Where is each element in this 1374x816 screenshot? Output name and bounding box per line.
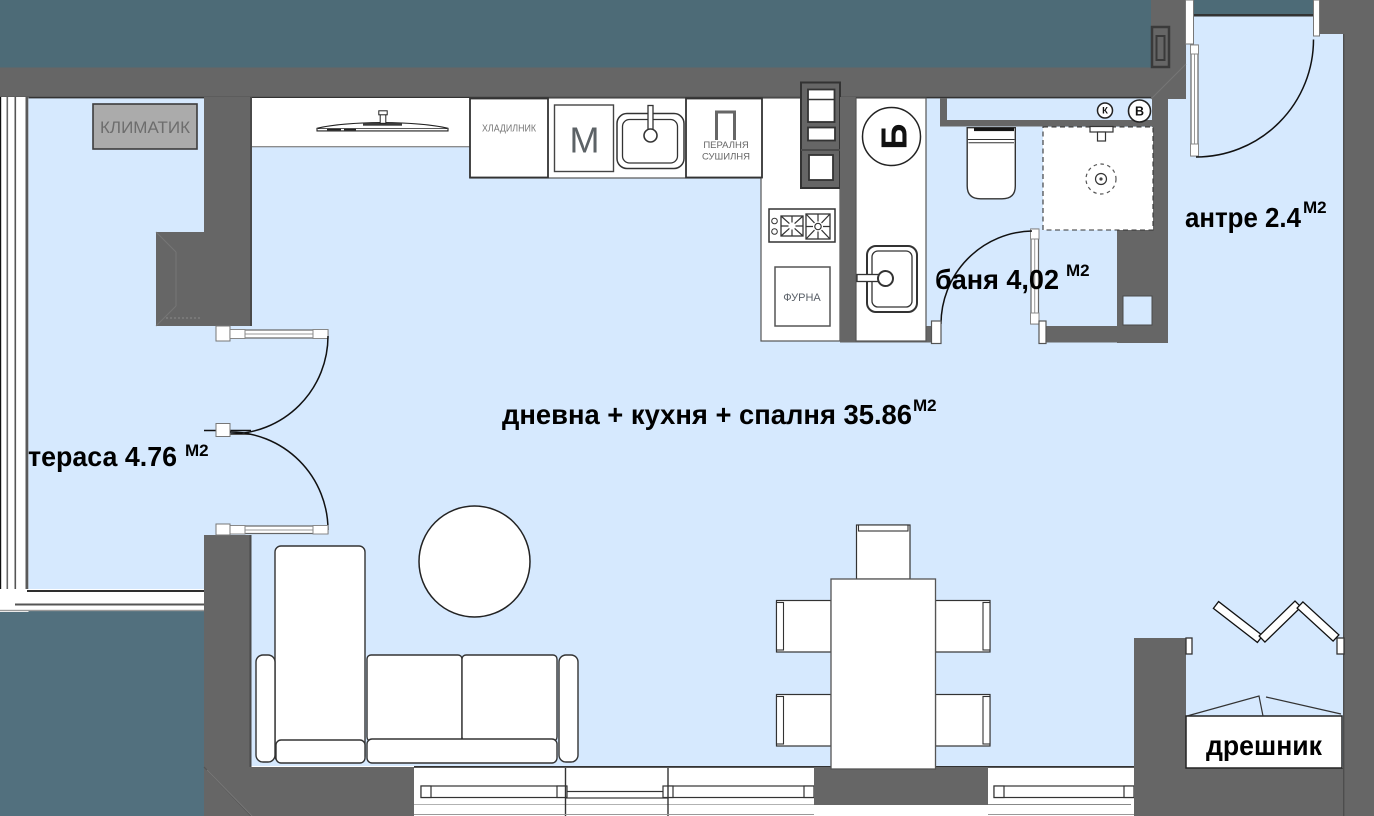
svg-text:Б: Б	[874, 124, 915, 150]
svg-text:М2: М2	[913, 396, 937, 415]
svg-text:М2: М2	[1303, 198, 1327, 217]
svg-text:баня 4,02: баня 4,02	[935, 264, 1059, 295]
svg-text:ПЕРАЛНЯ: ПЕРАЛНЯ	[703, 140, 749, 151]
svg-text:дневна + кухня + спалня 35.86: дневна + кухня + спалня 35.86	[502, 399, 912, 430]
svg-text:дрешник: дрешник	[1206, 730, 1323, 761]
svg-text:СУШИЛНЯ: СУШИЛНЯ	[702, 152, 750, 163]
svg-text:тераса 4.76: тераса 4.76	[28, 441, 177, 472]
svg-text:М: М	[570, 119, 600, 160]
svg-text:антре 2.4: антре 2.4	[1185, 202, 1301, 233]
svg-text:М2: М2	[1066, 261, 1090, 280]
svg-text:В: В	[1135, 105, 1144, 119]
svg-text:К: К	[1102, 106, 1108, 117]
svg-text:КЛИМАТИК: КЛИМАТИК	[100, 118, 190, 137]
svg-text:ХЛАДИЛНИК: ХЛАДИЛНИК	[482, 123, 537, 135]
svg-text:М2: М2	[185, 441, 209, 460]
svg-text:ФУРНА: ФУРНА	[783, 292, 821, 304]
